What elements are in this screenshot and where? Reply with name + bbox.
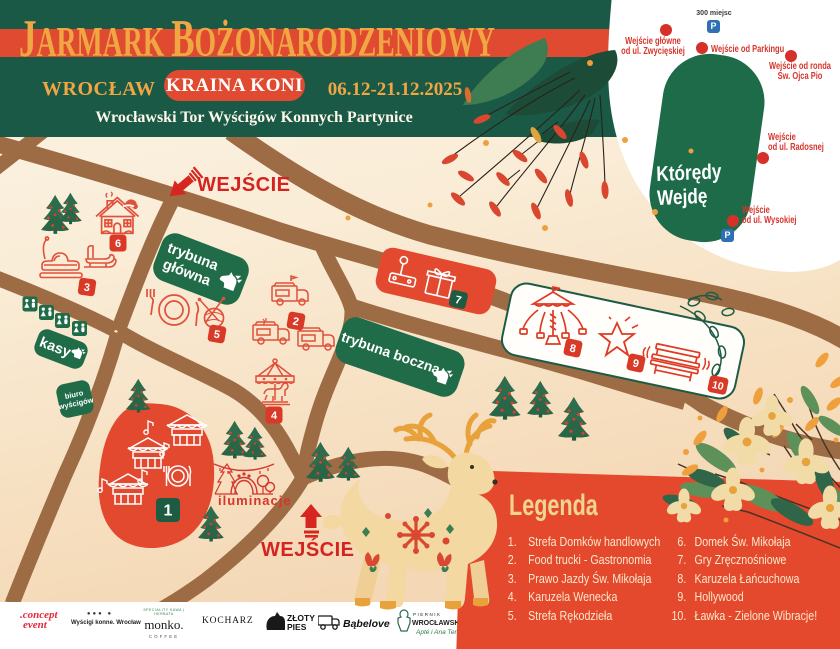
svg-text:Bąbelove: Bąbelove (343, 618, 390, 630)
svg-text:6: 6 (115, 238, 121, 250)
svg-text:WEJŚCIE: WEJŚCIE (261, 537, 355, 561)
svg-text:1: 1 (164, 503, 173, 520)
svg-text:WROCŁAWSKI: WROCŁAWSKI (412, 620, 461, 627)
svg-text:iluminacje: iluminacje (218, 493, 292, 508)
svg-text:4: 4 (271, 410, 278, 422)
svg-text:PIES: PIES (287, 622, 307, 632)
svg-text:WEJŚCIE: WEJŚCIE (197, 172, 291, 196)
svg-text:PIERNIK: PIERNIK (413, 612, 442, 617)
